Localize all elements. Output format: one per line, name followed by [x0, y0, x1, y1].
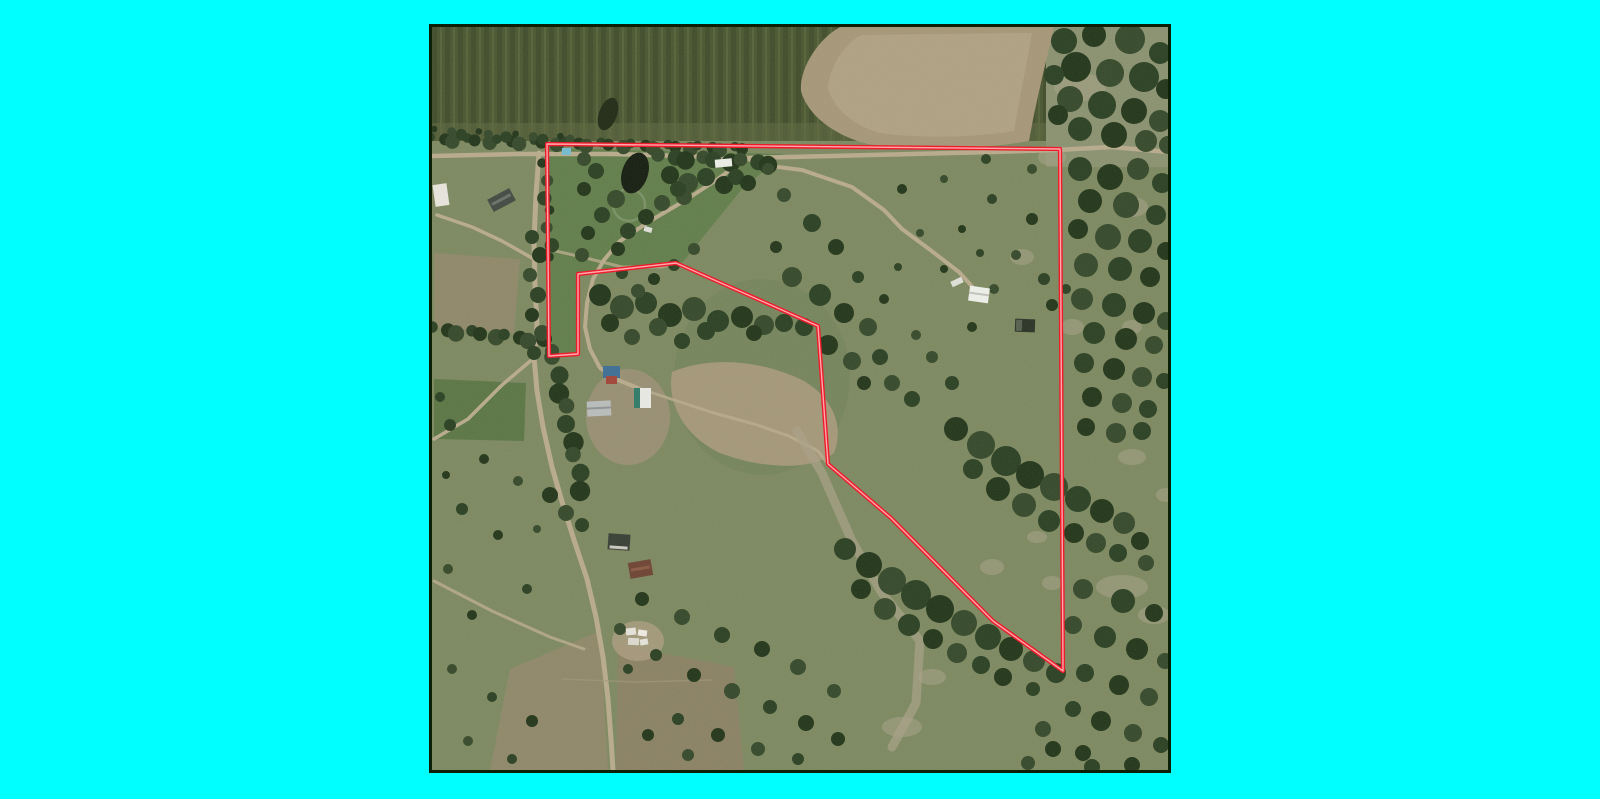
satellite-map-frame [429, 24, 1171, 773]
satellite-scene [432, 27, 1168, 770]
page-background [0, 0, 1600, 799]
photo-grain-texture [432, 27, 1168, 770]
